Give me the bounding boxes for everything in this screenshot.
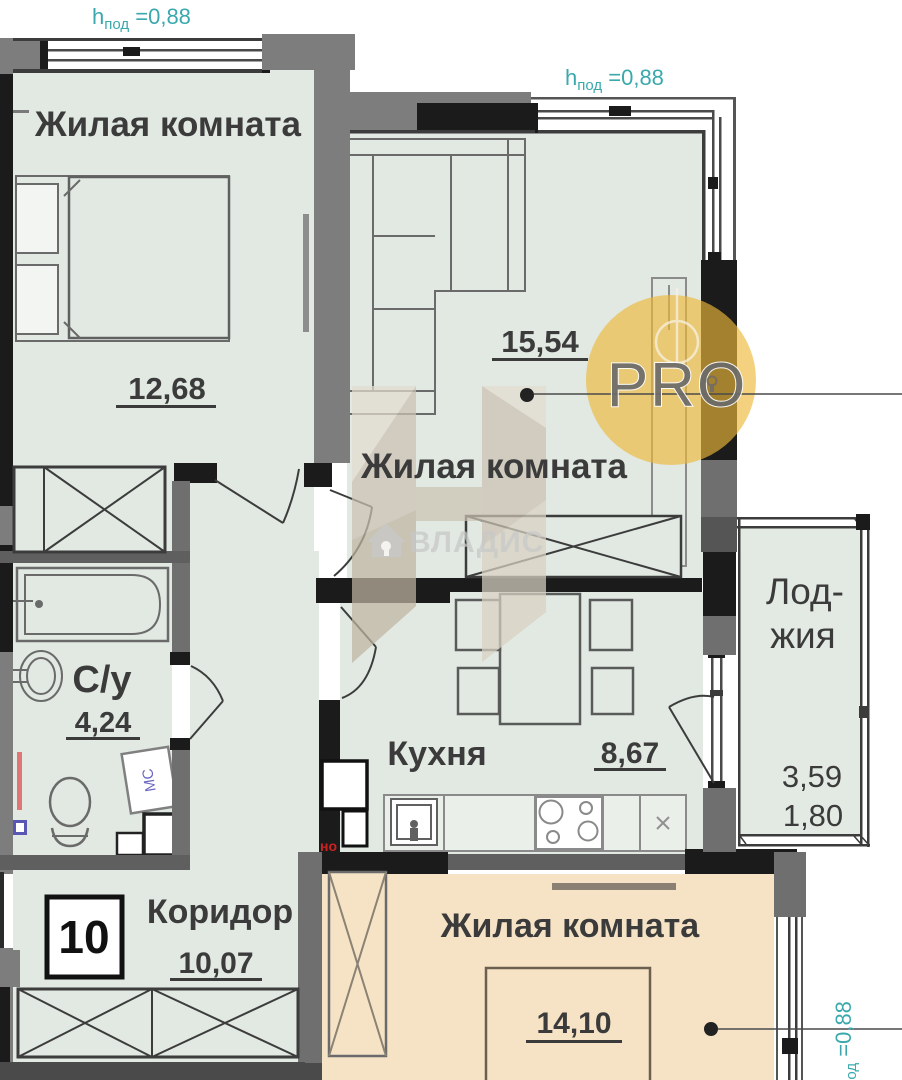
svg-text:Жилая комната: Жилая комната [360, 447, 628, 486]
svg-text:10,07: 10,07 [178, 947, 253, 980]
svg-text:ВЛАДИС: ВЛАДИС [409, 526, 544, 559]
svg-text:МС: МС [139, 767, 159, 793]
svg-text:1,80: 1,80 [783, 798, 843, 833]
svg-text:3,59: 3,59 [782, 759, 842, 794]
svg-text:8,67: 8,67 [601, 737, 659, 770]
svg-text:но: но [320, 838, 337, 854]
svg-text:Жилая комната: Жилая комната [440, 907, 701, 945]
svg-text:15,54: 15,54 [501, 324, 579, 359]
svg-text:Жилая комната: Жилая комната [34, 105, 302, 144]
svg-text:hпод =0,88: hпод =0,88 [92, 4, 191, 33]
svg-text:hпод =0,88: hпод =0,88 [831, 1001, 860, 1080]
svg-text:14,10: 14,10 [536, 1007, 611, 1040]
svg-text:12,68: 12,68 [128, 371, 206, 406]
svg-text:Кухня: Кухня [387, 735, 486, 773]
svg-text:Лод-: Лод- [766, 571, 844, 612]
svg-text:PRO: PRO [607, 351, 747, 420]
svg-text:hпод =0,88: hпод =0,88 [565, 65, 664, 94]
svg-text:4,24: 4,24 [75, 707, 131, 739]
svg-text:10: 10 [58, 911, 109, 963]
svg-text:С/у: С/у [72, 659, 131, 701]
svg-text:жия: жия [770, 615, 835, 656]
svg-text:Коридор: Коридор [147, 893, 293, 931]
